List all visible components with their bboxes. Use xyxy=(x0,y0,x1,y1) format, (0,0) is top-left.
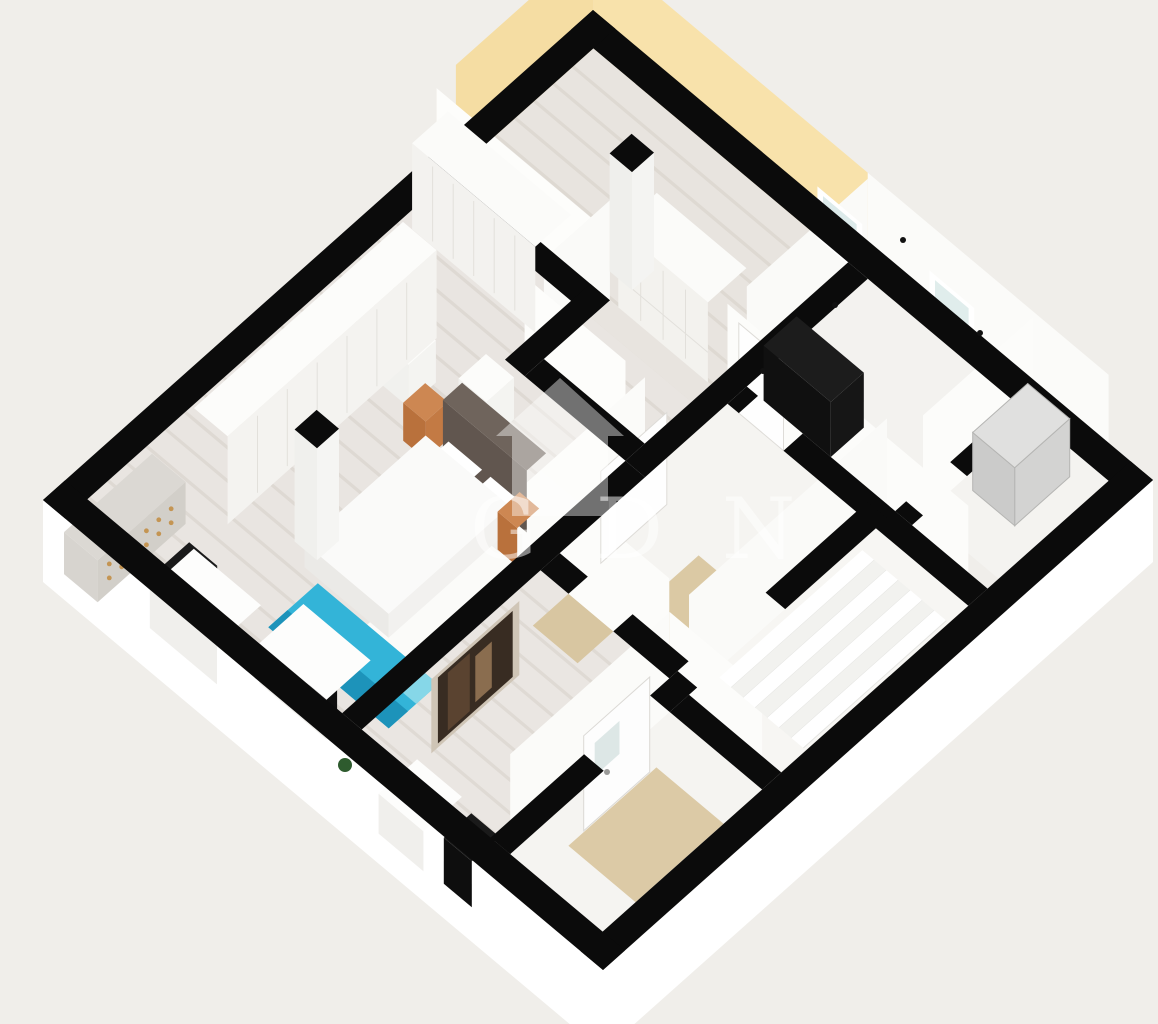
dresser-knobs-knob xyxy=(107,575,112,580)
dresser-knobs-knob xyxy=(156,517,161,522)
curtain-hook-2 xyxy=(832,302,838,308)
floorplan-3d: G D N xyxy=(0,0,1158,1024)
dresser-knobs-knob xyxy=(169,520,174,525)
pillar-bedroom-side xyxy=(317,429,339,561)
dresser-knobs-knob xyxy=(107,561,112,566)
pillar-yellow-room-side xyxy=(632,153,654,291)
watermark-text: G D N xyxy=(470,480,807,578)
pillar-bedroom-front xyxy=(295,430,317,561)
floorplan-viewport: G D N xyxy=(0,0,1158,1024)
pillar-yellow-room-front xyxy=(610,153,632,290)
curtain-hook-4 xyxy=(977,330,983,336)
dresser-knobs-knob xyxy=(156,531,161,536)
curtain-hook-3 xyxy=(760,368,766,374)
door-handle xyxy=(604,769,610,775)
dresser-knobs-knob xyxy=(144,528,149,533)
dresser-knobs-knob xyxy=(169,506,174,511)
dresser-knobs-knob xyxy=(144,542,149,547)
plant xyxy=(338,758,352,772)
curtain-hook-1 xyxy=(900,237,906,243)
